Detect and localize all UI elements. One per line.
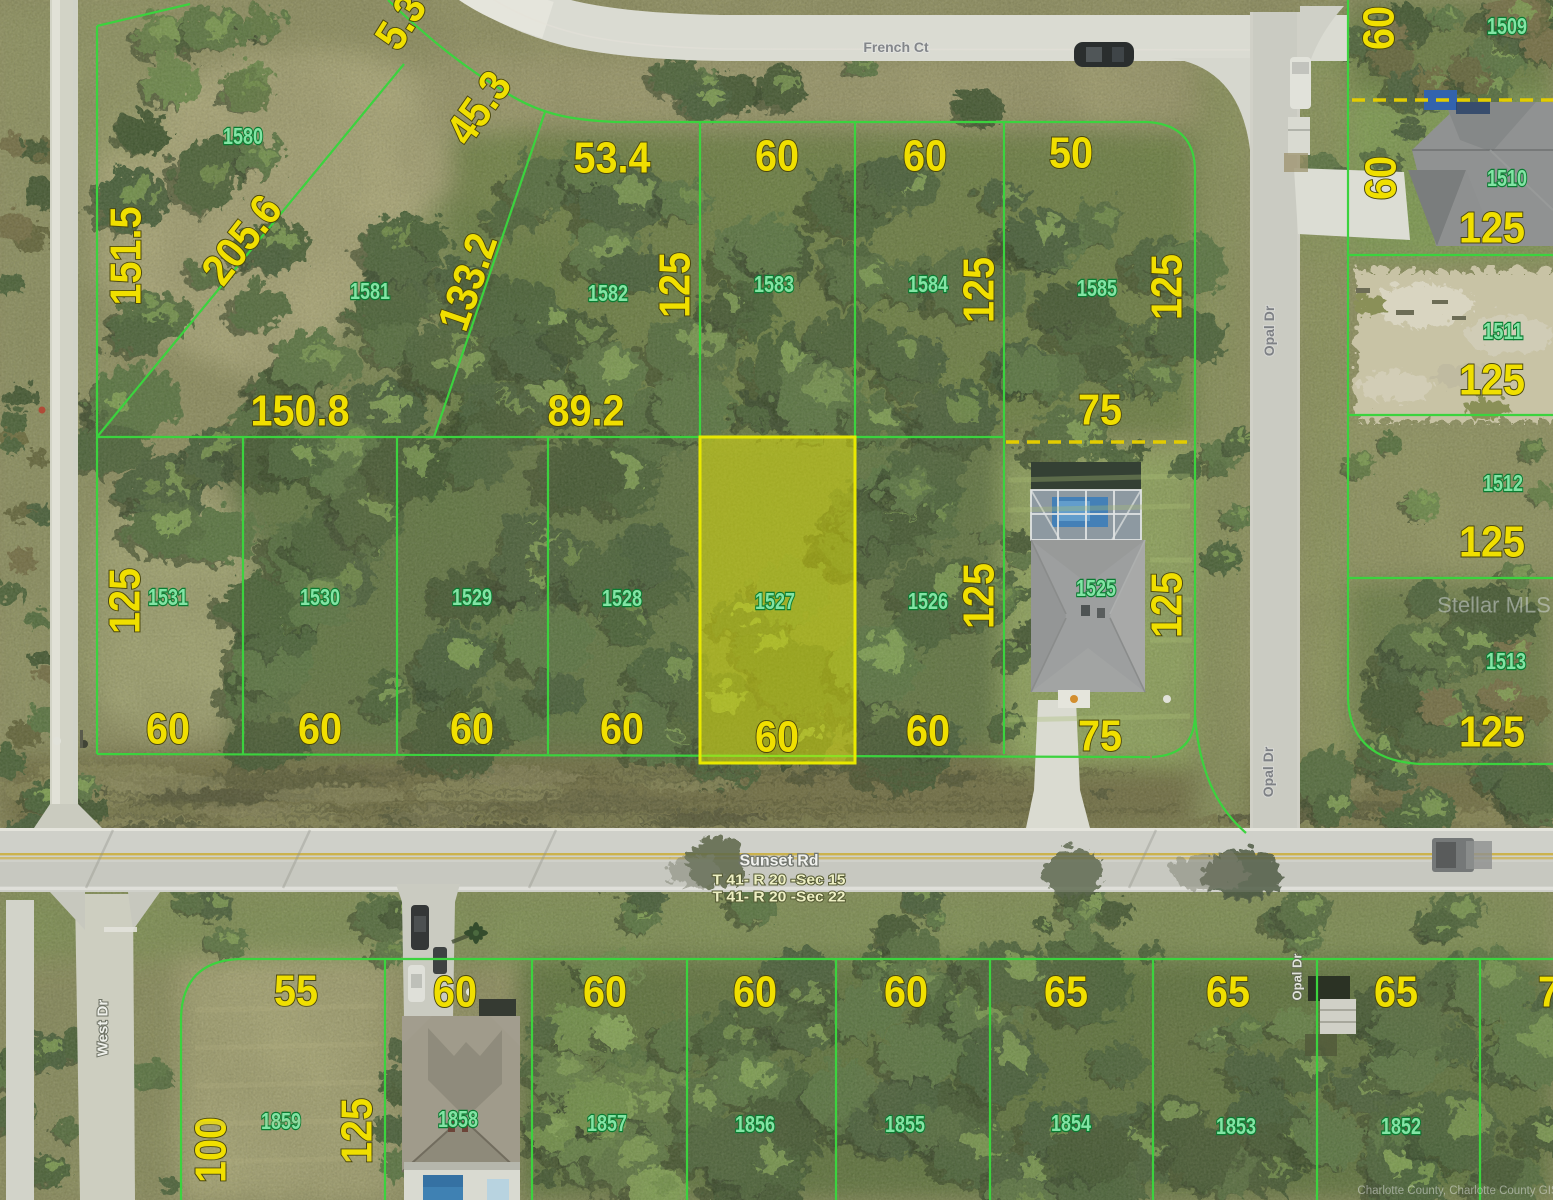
svg-text:1580: 1580	[223, 123, 263, 149]
svg-text:60: 60	[755, 132, 799, 181]
svg-text:1584: 1584	[908, 271, 948, 297]
svg-text:125: 125	[1459, 356, 1525, 405]
svg-text:1854: 1854	[1051, 1110, 1091, 1136]
svg-text:1526: 1526	[908, 588, 948, 614]
svg-text:60: 60	[903, 132, 947, 181]
svg-text:89.2: 89.2	[548, 387, 625, 436]
svg-text:125: 125	[955, 563, 1004, 629]
svg-text:60: 60	[298, 705, 342, 754]
svg-text:1855: 1855	[885, 1111, 925, 1137]
svg-text:T 41- R 20 -Sec 15: T 41- R 20 -Sec 15	[713, 872, 846, 889]
svg-text:West Dr: West Dr	[95, 1000, 112, 1057]
svg-text:60: 60	[755, 713, 799, 762]
svg-text:125: 125	[1459, 204, 1525, 253]
svg-text:1512: 1512	[1483, 470, 1523, 496]
svg-text:1583: 1583	[754, 271, 794, 297]
svg-text:1582: 1582	[588, 280, 628, 306]
svg-text:Stellar MLS: Stellar MLS	[1437, 593, 1551, 618]
svg-text:60: 60	[146, 705, 190, 754]
svg-text:1528: 1528	[602, 585, 642, 611]
svg-text:Opal Dr: Opal Dr	[1290, 954, 1305, 1001]
svg-text:1530: 1530	[300, 584, 340, 610]
svg-text:100: 100	[187, 1117, 236, 1183]
svg-text:1509: 1509	[1487, 13, 1527, 39]
svg-text:60: 60	[433, 968, 477, 1017]
svg-text:75: 75	[1078, 386, 1122, 435]
svg-text:1513: 1513	[1486, 648, 1526, 674]
svg-text:Sunset Rd: Sunset Rd	[739, 853, 818, 870]
svg-text:125: 125	[1459, 708, 1525, 757]
svg-text:60: 60	[1355, 6, 1404, 50]
svg-text:65: 65	[1044, 968, 1088, 1017]
svg-text:1585: 1585	[1077, 275, 1117, 301]
svg-text:125: 125	[333, 1098, 382, 1164]
svg-text:60: 60	[906, 707, 950, 756]
svg-text:Opal Dr: Opal Dr	[1261, 305, 1277, 356]
svg-text:125: 125	[651, 252, 700, 318]
svg-text:60: 60	[450, 705, 494, 754]
svg-text:1525: 1525	[1076, 575, 1116, 601]
svg-text:125: 125	[1143, 572, 1192, 638]
svg-text:50: 50	[1049, 129, 1093, 178]
svg-text:T 41- R 20 -Sec 22: T 41- R 20 -Sec 22	[713, 889, 846, 906]
svg-text:60: 60	[1357, 156, 1406, 200]
svg-text:1857: 1857	[587, 1110, 627, 1136]
svg-text:53.4: 53.4	[574, 134, 651, 183]
svg-text:1856: 1856	[735, 1111, 775, 1137]
svg-text:125: 125	[101, 568, 150, 634]
svg-text:60: 60	[583, 968, 627, 1017]
svg-text:1852: 1852	[1381, 1113, 1421, 1139]
svg-text:1511: 1511	[1483, 318, 1523, 344]
svg-text:150.8: 150.8	[251, 387, 350, 436]
svg-text:125: 125	[1459, 518, 1525, 567]
svg-text:Charlotte County, Charlotte Co: Charlotte County, Charlotte County GIS	[1357, 1185, 1553, 1197]
svg-text:1527: 1527	[755, 588, 795, 614]
svg-text:65: 65	[1374, 968, 1418, 1017]
svg-text:151.5: 151.5	[102, 207, 151, 306]
svg-text:60: 60	[600, 705, 644, 754]
svg-text:60: 60	[884, 968, 928, 1017]
svg-text:125: 125	[1143, 254, 1192, 320]
svg-text:1510: 1510	[1487, 165, 1527, 191]
svg-text:1531: 1531	[148, 584, 188, 610]
svg-text:125: 125	[955, 257, 1004, 323]
svg-text:75: 75	[1078, 712, 1122, 761]
svg-text:1858: 1858	[438, 1106, 478, 1132]
svg-text:Opal Dr: Opal Dr	[1260, 746, 1276, 797]
svg-text:1581: 1581	[350, 278, 390, 304]
svg-text:1853: 1853	[1216, 1113, 1256, 1139]
svg-text:French Ct: French Ct	[863, 39, 929, 55]
svg-text:1529: 1529	[452, 584, 492, 610]
svg-text:75: 75	[1538, 968, 1553, 1017]
svg-text:60: 60	[733, 968, 777, 1017]
svg-text:65: 65	[1206, 968, 1250, 1017]
